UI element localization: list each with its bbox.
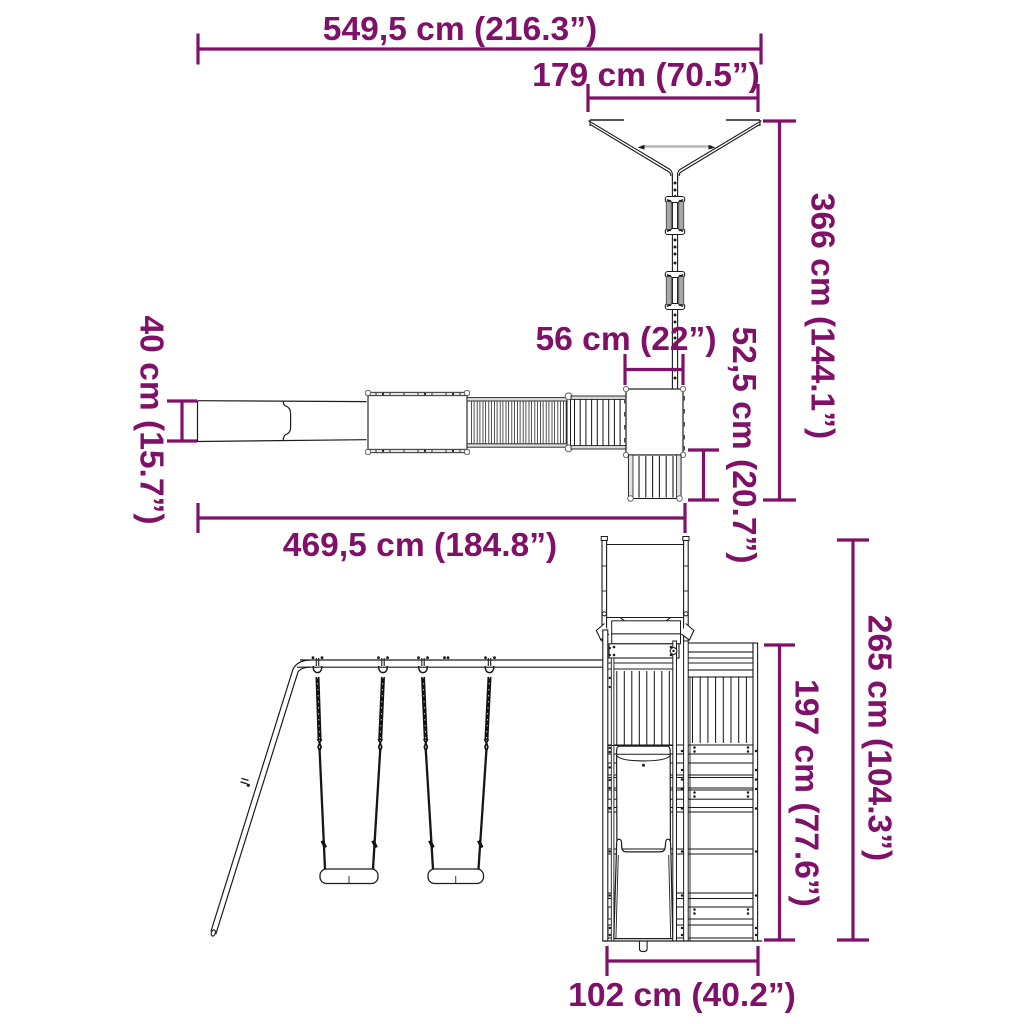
svg-text:179 cm (70.5”): 179 cm (70.5”): [532, 57, 760, 94]
svg-text:40 cm (15.7”): 40 cm (15.7”): [133, 315, 170, 524]
svg-text:56 cm (22”): 56 cm (22”): [535, 321, 716, 358]
svg-text:549,5 cm (216.3”): 549,5 cm (216.3”): [323, 11, 597, 48]
svg-text:197 cm (77.6”): 197 cm (77.6”): [788, 679, 825, 907]
svg-text:102 cm (40.2”): 102 cm (40.2”): [568, 977, 796, 1014]
svg-text:52,5 cm (20.7”): 52,5 cm (20.7”): [725, 326, 762, 563]
svg-text:366 cm (144.1”): 366 cm (144.1”): [804, 193, 841, 439]
svg-text:265 cm (104.3”): 265 cm (104.3”): [861, 615, 898, 861]
svg-text:469,5 cm (184.8”): 469,5 cm (184.8”): [283, 527, 557, 564]
